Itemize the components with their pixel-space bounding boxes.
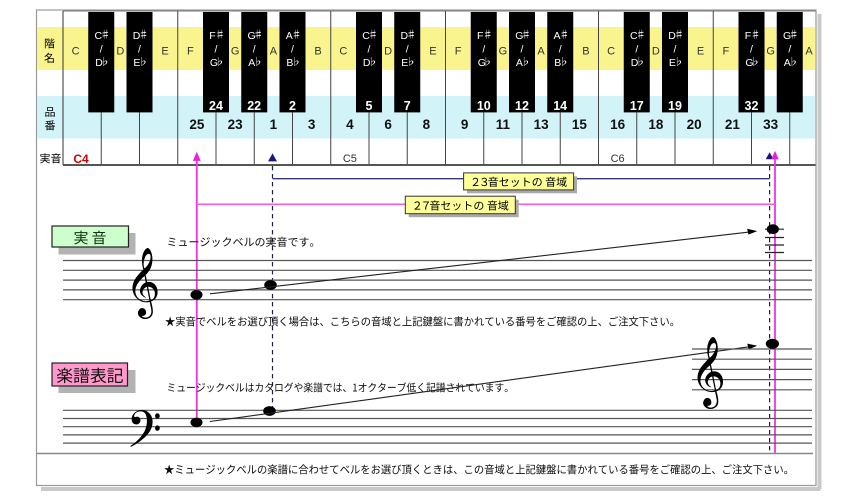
svg-text:24: 24 [209, 99, 223, 113]
svg-text:D: D [652, 46, 660, 58]
svg-text:A: A [554, 30, 561, 42]
svg-text:D: D [133, 30, 141, 42]
svg-text:D: D [116, 46, 124, 58]
svg-text:17: 17 [630, 99, 644, 113]
svg-text:6: 6 [384, 117, 392, 132]
svg-text:16: 16 [610, 117, 626, 132]
svg-text:13: 13 [534, 117, 550, 132]
svg-text:F: F [209, 30, 215, 42]
svg-text:C: C [339, 46, 347, 58]
svg-text:A: A [270, 46, 278, 58]
svg-text:/: / [291, 44, 294, 56]
svg-text:E: E [161, 46, 168, 58]
svg-text:C4: C4 [73, 152, 89, 166]
svg-text:/: / [635, 44, 638, 56]
svg-text:11: 11 [496, 117, 511, 132]
svg-text:1: 1 [270, 117, 278, 132]
svg-text:C: C [362, 30, 370, 42]
svg-text:/: / [482, 44, 485, 56]
svg-text:20: 20 [687, 117, 702, 132]
svg-text:G: G [231, 46, 240, 58]
svg-text:F: F [477, 30, 483, 42]
svg-text:2: 2 [289, 99, 296, 113]
svg-text:5: 5 [366, 99, 373, 113]
svg-text:D: D [384, 46, 392, 58]
svg-text:14: 14 [553, 99, 567, 113]
svg-text:E: E [401, 57, 408, 69]
svg-text:12: 12 [515, 99, 529, 113]
svg-text:/: / [253, 44, 256, 56]
svg-text:/: / [138, 44, 141, 56]
svg-text:/: / [215, 44, 218, 56]
svg-text:F: F [187, 46, 194, 58]
svg-text:22: 22 [247, 99, 261, 113]
svg-text:A: A [805, 46, 813, 58]
svg-text:/: / [368, 44, 371, 56]
svg-text:G: G [478, 57, 486, 69]
svg-text:G: G [745, 57, 753, 69]
svg-text:32: 32 [745, 99, 759, 113]
svg-text:/: / [559, 44, 562, 56]
svg-text:C: C [607, 46, 615, 58]
svg-text:18: 18 [648, 117, 664, 132]
svg-text:/: / [750, 44, 753, 56]
svg-text:D: D [95, 57, 103, 69]
svg-text:A: A [286, 30, 293, 42]
svg-text:C: C [72, 46, 80, 58]
svg-text:25: 25 [189, 117, 205, 132]
svg-text:8: 8 [423, 117, 431, 132]
svg-text:A: A [784, 57, 791, 69]
svg-text:D: D [668, 30, 676, 42]
svg-text:E: E [697, 46, 704, 58]
svg-text:E: E [133, 57, 140, 69]
svg-text:E: E [429, 46, 436, 58]
svg-text:A: A [537, 46, 545, 58]
svg-text:G: G [783, 30, 791, 42]
svg-text:B: B [286, 57, 293, 69]
svg-text:D: D [631, 57, 639, 69]
svg-text:10: 10 [477, 99, 491, 113]
svg-text:D: D [363, 57, 371, 69]
svg-text:4: 4 [346, 117, 354, 132]
svg-text:33: 33 [763, 117, 779, 132]
svg-text:3: 3 [308, 117, 316, 132]
svg-text:C: C [95, 30, 103, 42]
svg-text:C: C [630, 30, 638, 42]
svg-text:C5: C5 [343, 153, 357, 165]
svg-text:G: G [210, 57, 218, 69]
svg-text:D: D [401, 30, 409, 42]
svg-text:9: 9 [461, 117, 469, 132]
svg-text:/: / [406, 44, 409, 56]
svg-text:B: B [582, 46, 589, 58]
svg-text:G: G [766, 46, 775, 58]
svg-text:A: A [516, 57, 523, 69]
svg-text:B: B [554, 57, 561, 69]
svg-text:7: 7 [404, 99, 411, 113]
svg-text:G: G [515, 30, 523, 42]
svg-text:C6: C6 [611, 153, 625, 165]
svg-text:G: G [499, 46, 508, 58]
svg-text:21: 21 [725, 117, 741, 132]
svg-text:A: A [248, 57, 255, 69]
svg-text:/: / [521, 44, 524, 56]
svg-text:15: 15 [572, 117, 588, 132]
svg-text:23: 23 [228, 117, 244, 132]
svg-text:B: B [314, 46, 321, 58]
svg-text:E: E [669, 57, 676, 69]
svg-text:F: F [455, 46, 462, 58]
svg-text:F: F [723, 46, 730, 58]
svg-text:G: G [248, 30, 256, 42]
svg-text:/: / [674, 44, 677, 56]
svg-text:/: / [100, 44, 103, 56]
svg-text:F: F [745, 30, 751, 42]
svg-text:/: / [788, 44, 791, 56]
svg-text:19: 19 [668, 99, 682, 113]
